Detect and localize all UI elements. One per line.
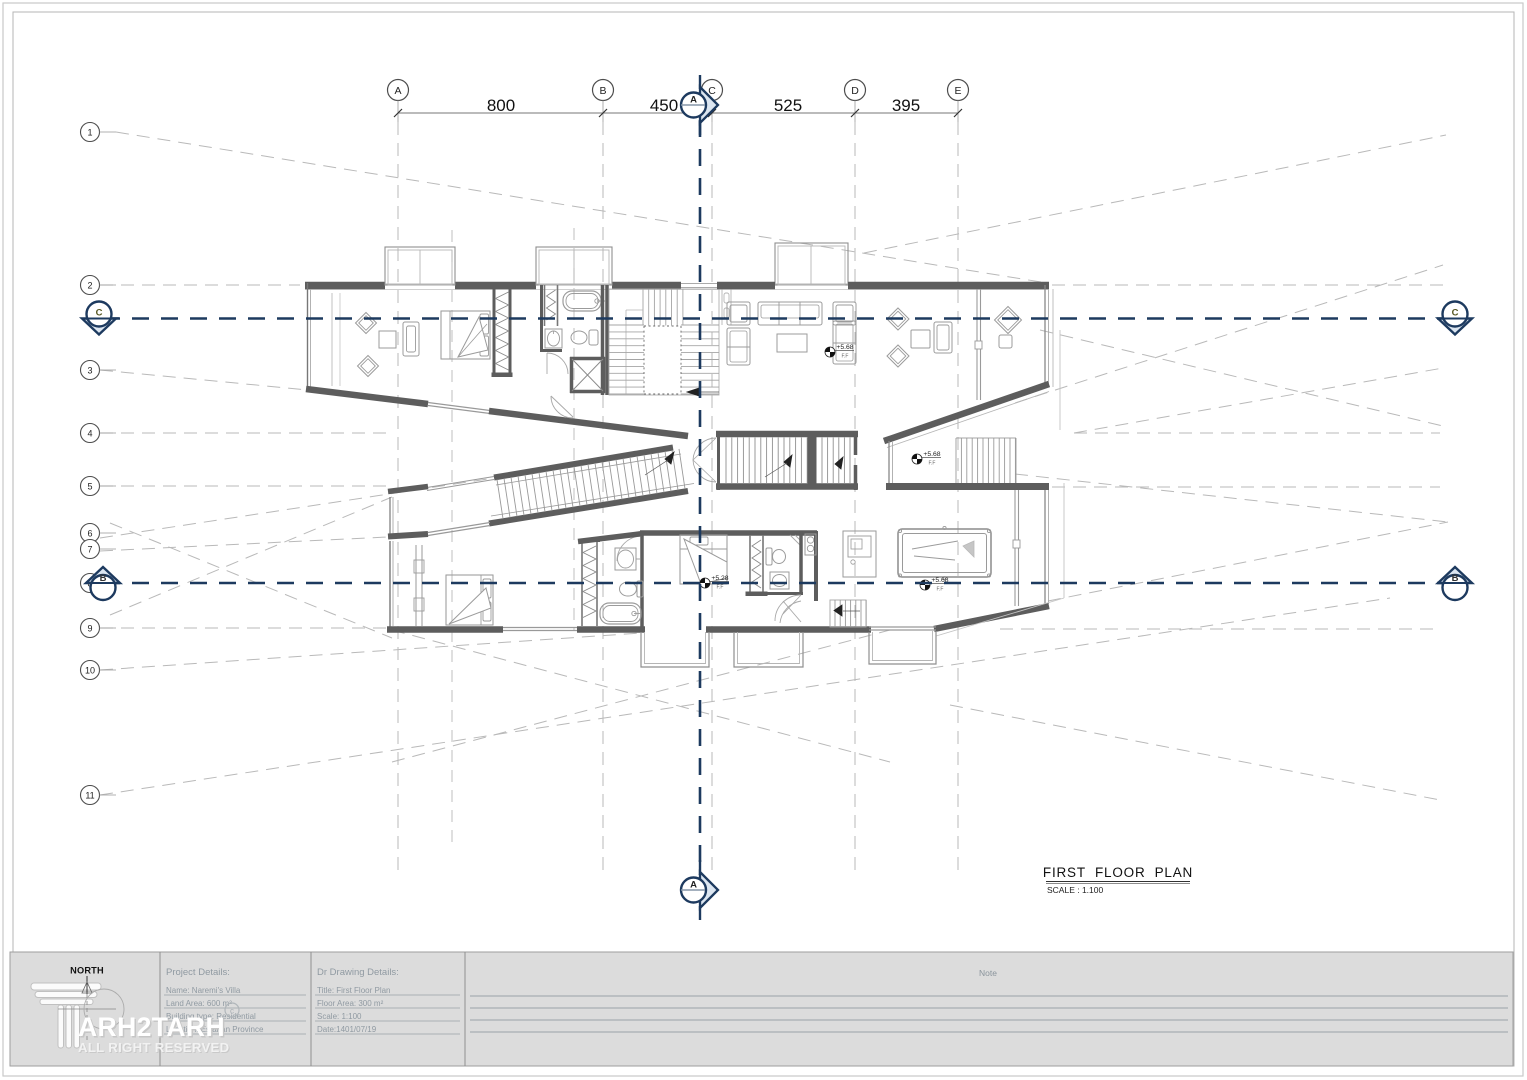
svg-text:C: C [96, 308, 103, 319]
svg-text:NORTH: NORTH [70, 966, 104, 976]
svg-text:2: 2 [87, 281, 92, 291]
svg-text:Title: First Floor Plan: Title: First Floor Plan [317, 986, 391, 995]
svg-text:Floor Area: 300 m²: Floor Area: 300 m² [317, 999, 384, 1008]
svg-text:4: 4 [87, 429, 92, 439]
svg-text:Name: Naremi's Villa: Name: Naremi's Villa [166, 986, 241, 995]
svg-text:F.F: F.F [937, 587, 944, 593]
svg-text:ARH2TARH: ARH2TARH [78, 1012, 225, 1042]
svg-text:3: 3 [87, 366, 92, 376]
svg-text:E: E [954, 85, 961, 97]
svg-text:Dr Drawing Details:: Dr Drawing Details: [317, 967, 399, 978]
svg-text:7: 7 [87, 545, 92, 555]
svg-text:6: 6 [87, 529, 92, 539]
svg-text:F.F: F.F [929, 461, 936, 467]
svg-text:Project Details:: Project Details: [166, 967, 230, 978]
svg-text:F.F: F.F [717, 585, 724, 591]
svg-text:F.F: F.F [842, 354, 849, 360]
svg-text:D: D [851, 85, 859, 97]
svg-text:B: B [1452, 573, 1459, 584]
svg-text:A: A [690, 880, 697, 891]
svg-text:1: 1 [87, 128, 92, 138]
svg-text:FIRST FLOOR PLAN: FIRST FLOOR PLAN [1043, 865, 1193, 880]
svg-text:800: 800 [487, 96, 515, 115]
svg-text:SCALE : 1.100: SCALE : 1.100 [1047, 885, 1104, 895]
svg-text:Scale: 1:100: Scale: 1:100 [317, 1012, 362, 1021]
svg-text:B: B [100, 573, 107, 584]
svg-text:C: C [1452, 308, 1459, 319]
svg-text:A: A [394, 85, 401, 97]
svg-text:Note: Note [979, 968, 997, 978]
svg-text:+5.68: +5.68 [923, 451, 940, 458]
svg-text:9: 9 [87, 624, 92, 634]
svg-text:395: 395 [892, 96, 920, 115]
svg-text:11: 11 [85, 791, 94, 801]
svg-text:450: 450 [650, 96, 678, 115]
svg-text:Land Area: 600 m²: Land Area: 600 m² [166, 999, 232, 1008]
svg-text:B: B [599, 85, 606, 97]
svg-text:10: 10 [85, 666, 95, 676]
svg-text:ALL RIGHT RESERVED: ALL RIGHT RESERVED [78, 1040, 229, 1055]
svg-text:5: 5 [87, 482, 92, 492]
svg-text:A: A [690, 95, 697, 106]
svg-text:c: c [230, 1007, 234, 1016]
svg-text:525: 525 [774, 96, 802, 115]
svg-text:Date:1401/07/19: Date:1401/07/19 [317, 1025, 377, 1034]
svg-text:+5.68: +5.68 [836, 344, 853, 351]
svg-text:+5.28: +5.28 [711, 575, 728, 582]
